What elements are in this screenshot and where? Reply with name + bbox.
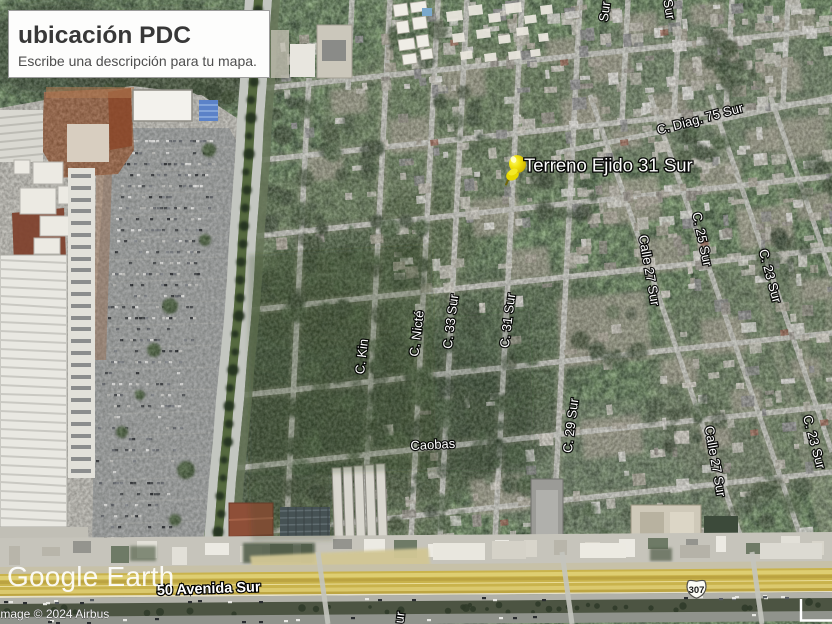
svg-text:307: 307 [689, 585, 705, 596]
svg-text:Terreno Ejido 31 Sur: Terreno Ejido 31 Sur [524, 155, 693, 176]
svg-text:Caobas: Caobas [410, 436, 456, 453]
svg-text:Google Earth: Google Earth [7, 561, 174, 592]
svg-text:ubicación PDC: ubicación PDC [18, 22, 191, 49]
svg-text:Image © 2024 Airbus: Image © 2024 Airbus [0, 607, 109, 621]
svg-text:Escribe una descripción para t: Escribe una descripción para tu mapa. [18, 53, 257, 69]
svg-text:Sur: Sur [596, 0, 613, 22]
